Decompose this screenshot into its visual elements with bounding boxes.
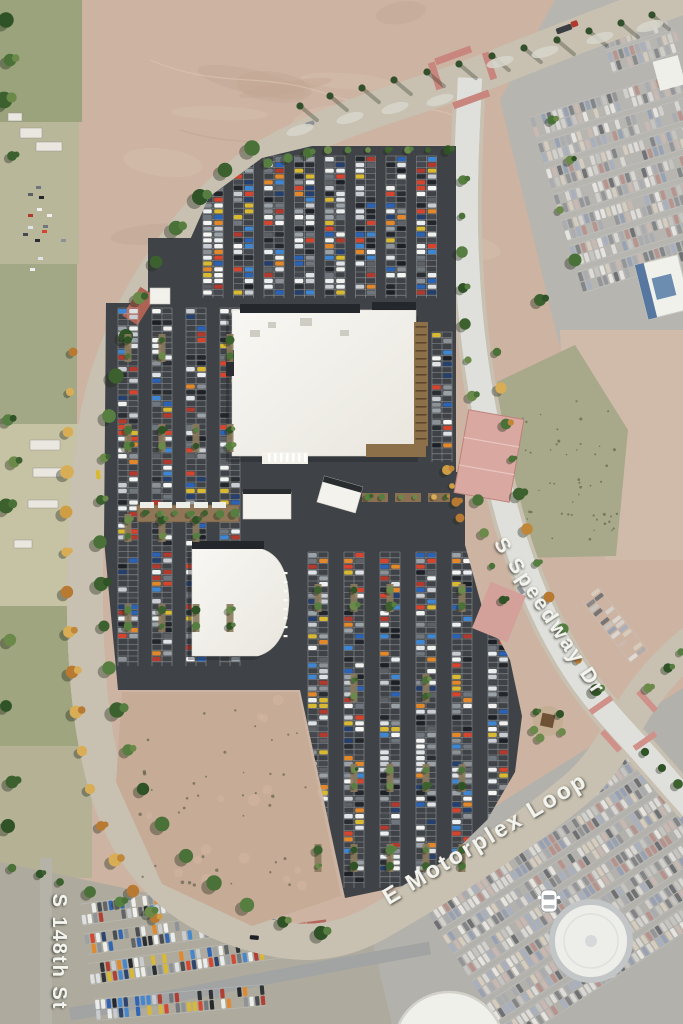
tree — [60, 506, 73, 519]
car — [325, 227, 334, 231]
round-building-hub — [585, 935, 597, 947]
tree — [218, 163, 233, 178]
car — [245, 244, 254, 248]
car — [163, 634, 172, 638]
car — [261, 995, 266, 1005]
tree — [459, 213, 466, 220]
parapet — [372, 302, 416, 310]
car — [264, 273, 273, 277]
car — [380, 715, 389, 719]
roof-unit — [250, 330, 260, 337]
car — [427, 599, 436, 603]
car — [203, 290, 212, 294]
car — [488, 721, 497, 725]
canopy — [176, 502, 190, 508]
car — [214, 198, 223, 202]
car — [432, 362, 441, 366]
car — [336, 169, 345, 173]
scrub — [271, 795, 274, 798]
car — [234, 198, 243, 202]
tree — [14, 152, 20, 158]
dock-door — [416, 326, 427, 328]
scrub — [538, 490, 539, 491]
tree — [355, 602, 360, 607]
car — [355, 663, 364, 667]
car — [214, 989, 219, 999]
car — [204, 1000, 209, 1010]
tree — [117, 854, 125, 862]
car — [295, 215, 304, 219]
car — [197, 384, 206, 388]
tree — [41, 870, 46, 875]
car — [275, 209, 284, 213]
car — [391, 820, 400, 824]
tree — [157, 914, 163, 920]
car — [308, 559, 317, 563]
car — [397, 192, 406, 196]
dock-door — [416, 438, 427, 440]
car — [118, 419, 127, 423]
car — [186, 489, 195, 493]
car — [152, 321, 161, 325]
tree — [244, 140, 260, 156]
car — [245, 180, 254, 184]
scrub — [193, 883, 196, 886]
car — [306, 180, 315, 184]
scrub — [549, 482, 551, 484]
car — [391, 692, 400, 696]
tree — [161, 511, 165, 515]
car — [275, 180, 284, 184]
car — [443, 362, 452, 366]
canopy — [140, 502, 154, 508]
car — [264, 221, 273, 225]
car — [417, 209, 426, 213]
car — [380, 826, 389, 830]
tree — [78, 706, 86, 714]
car — [499, 739, 508, 743]
scrub — [143, 770, 146, 773]
tree — [102, 661, 116, 675]
car — [152, 454, 161, 458]
car — [380, 756, 389, 760]
car — [367, 261, 376, 265]
car — [356, 232, 365, 236]
car — [306, 273, 315, 277]
car — [367, 221, 376, 225]
car — [186, 309, 195, 313]
car — [244, 997, 249, 1007]
tree — [231, 607, 236, 612]
car — [308, 704, 317, 708]
car — [295, 290, 304, 294]
car — [416, 756, 425, 760]
scrub — [589, 538, 592, 541]
car — [234, 244, 243, 248]
scrub — [610, 515, 612, 517]
dock-door — [416, 366, 427, 368]
car — [129, 309, 138, 313]
car — [203, 267, 212, 271]
car — [432, 426, 441, 430]
tree — [351, 587, 358, 594]
car — [214, 238, 223, 242]
car — [163, 483, 172, 487]
car — [367, 203, 376, 207]
car — [417, 290, 426, 294]
car — [226, 998, 231, 1008]
car — [452, 663, 461, 667]
scrub — [269, 773, 271, 775]
car — [380, 576, 389, 580]
car — [344, 617, 353, 621]
car — [118, 489, 127, 493]
car — [380, 669, 389, 673]
car — [186, 367, 195, 371]
tree — [283, 153, 292, 162]
canopy — [194, 502, 208, 508]
tree — [63, 427, 74, 438]
car — [452, 820, 461, 824]
car — [397, 157, 406, 161]
car — [181, 1002, 186, 1012]
car — [356, 157, 365, 161]
tree — [155, 817, 170, 832]
car — [325, 163, 334, 167]
car — [197, 332, 206, 336]
palm-tree — [455, 60, 462, 67]
car — [306, 209, 315, 213]
car — [417, 180, 426, 184]
car — [295, 256, 304, 260]
car — [234, 192, 243, 196]
car — [344, 715, 353, 719]
car — [386, 285, 395, 289]
scrub — [181, 881, 185, 885]
car — [163, 471, 172, 475]
car — [463, 797, 472, 801]
tree — [226, 352, 233, 359]
scrub — [197, 795, 199, 797]
car — [417, 267, 426, 271]
tree — [324, 146, 332, 154]
tree — [553, 116, 559, 122]
car — [427, 570, 436, 574]
entry-mark — [284, 608, 288, 610]
car — [152, 995, 157, 1005]
tree — [129, 442, 134, 447]
car — [135, 996, 140, 1006]
car — [463, 657, 472, 661]
car — [163, 640, 172, 644]
dock-door — [416, 422, 427, 424]
car — [129, 315, 138, 319]
car — [443, 350, 452, 354]
tree — [427, 677, 432, 682]
car — [488, 715, 497, 719]
car — [463, 733, 472, 737]
car — [118, 587, 127, 591]
tree — [158, 352, 165, 359]
tree — [425, 147, 431, 153]
car — [416, 652, 425, 656]
car — [129, 634, 138, 638]
car — [234, 221, 243, 225]
car — [264, 180, 273, 184]
stored-vehicle — [61, 239, 66, 242]
car — [443, 391, 452, 395]
car — [428, 232, 437, 236]
car — [432, 408, 441, 412]
tree — [71, 627, 78, 634]
site-plan-canvas: S Speedway Dr E Motorplex Loop S 148th S… — [0, 0, 683, 1024]
car — [355, 826, 364, 830]
car — [417, 221, 426, 225]
car — [158, 1004, 163, 1014]
tree — [369, 494, 373, 498]
car — [417, 163, 426, 167]
car — [96, 1010, 101, 1020]
car — [499, 768, 508, 772]
parapet — [240, 304, 360, 313]
car — [209, 1000, 214, 1010]
tree — [458, 602, 466, 610]
car — [367, 238, 376, 242]
car — [428, 238, 437, 242]
car — [428, 244, 437, 248]
car — [386, 221, 395, 225]
tree — [489, 563, 495, 569]
shop-canopies — [140, 502, 226, 508]
tree — [158, 606, 166, 614]
car — [428, 163, 437, 167]
tree — [74, 666, 82, 674]
tree — [85, 784, 95, 794]
car — [432, 385, 441, 389]
car — [428, 198, 437, 202]
scrub — [530, 452, 532, 454]
car — [417, 215, 426, 219]
scrub — [193, 782, 196, 785]
car — [306, 261, 315, 265]
car — [416, 744, 425, 748]
car — [386, 227, 395, 231]
car — [203, 227, 212, 231]
car — [432, 391, 441, 395]
car — [356, 250, 365, 254]
scrub — [551, 538, 553, 540]
scrub — [567, 513, 569, 515]
car — [386, 192, 395, 196]
car — [416, 715, 425, 719]
tree — [16, 457, 23, 464]
car — [245, 256, 254, 260]
tree — [474, 391, 480, 397]
scrub — [248, 794, 260, 806]
car — [295, 186, 304, 190]
car — [344, 704, 353, 708]
car — [306, 221, 315, 225]
dock-door — [416, 430, 427, 432]
tree — [124, 606, 132, 614]
scrub — [215, 869, 218, 872]
car — [463, 617, 472, 621]
tree — [351, 783, 357, 789]
tree — [61, 586, 73, 598]
car — [169, 993, 174, 1003]
car — [443, 420, 452, 424]
car — [325, 250, 334, 254]
scrub — [616, 513, 618, 515]
scrub — [613, 448, 616, 451]
car — [308, 721, 317, 725]
car — [488, 733, 497, 737]
tree — [495, 382, 506, 393]
car — [118, 483, 127, 487]
car — [264, 261, 273, 265]
stored-vehicle — [28, 214, 33, 217]
car — [129, 489, 138, 493]
car — [356, 203, 365, 207]
tree — [413, 495, 418, 500]
car — [380, 831, 389, 835]
tree — [355, 678, 358, 681]
tree — [240, 898, 254, 912]
car — [397, 169, 406, 173]
car — [231, 535, 240, 539]
car — [428, 290, 437, 294]
car — [214, 209, 223, 213]
car — [391, 657, 400, 661]
car — [187, 1002, 192, 1012]
car — [306, 192, 315, 196]
car — [308, 623, 317, 627]
car — [295, 180, 304, 184]
car — [386, 273, 395, 277]
tree — [391, 846, 397, 852]
car — [275, 290, 284, 294]
car — [275, 203, 284, 207]
car — [295, 244, 304, 248]
car — [416, 739, 425, 743]
car — [107, 1009, 112, 1019]
building-roof — [192, 548, 289, 656]
car — [391, 681, 400, 685]
car — [186, 495, 195, 499]
car — [306, 215, 315, 219]
car — [152, 564, 161, 568]
entry-mark — [284, 599, 288, 601]
car — [197, 477, 206, 481]
car — [214, 290, 223, 294]
scrub — [556, 443, 558, 445]
tree — [8, 864, 17, 873]
car — [416, 605, 425, 609]
scrub — [260, 714, 268, 722]
dock-door — [416, 374, 427, 376]
scrub — [313, 738, 315, 740]
palm-tree — [326, 92, 333, 99]
car — [355, 715, 364, 719]
scrub — [268, 804, 271, 807]
scrub — [142, 876, 144, 878]
car — [499, 698, 508, 702]
tree — [459, 767, 466, 774]
farm-building — [28, 500, 58, 508]
car — [319, 715, 328, 719]
scrub — [613, 528, 615, 530]
car — [427, 669, 436, 673]
tree — [103, 822, 109, 828]
car — [443, 426, 452, 430]
car — [356, 256, 365, 260]
car — [118, 657, 127, 661]
car — [234, 290, 243, 294]
scrub — [576, 400, 578, 402]
tree — [231, 623, 236, 628]
car — [163, 390, 172, 394]
car — [275, 221, 284, 225]
car — [391, 739, 400, 743]
car — [152, 640, 161, 644]
tree — [641, 748, 649, 756]
car — [397, 227, 406, 231]
loading-dock — [414, 322, 428, 446]
car — [308, 733, 317, 737]
tree — [216, 510, 224, 518]
scrub — [576, 449, 578, 451]
car — [96, 470, 101, 479]
tree — [230, 508, 239, 517]
tree — [558, 728, 566, 736]
car — [427, 797, 436, 801]
car — [245, 285, 254, 289]
tree — [536, 734, 545, 743]
scrub — [572, 501, 574, 503]
car — [416, 553, 425, 557]
car — [118, 570, 127, 574]
car — [499, 675, 508, 679]
car — [428, 203, 437, 207]
car — [416, 733, 425, 737]
car — [197, 355, 206, 359]
tree — [472, 494, 483, 505]
car — [129, 471, 138, 475]
car — [295, 192, 304, 196]
car — [325, 256, 334, 260]
car — [306, 186, 315, 190]
car — [203, 285, 212, 289]
car — [443, 449, 452, 453]
car — [336, 180, 345, 184]
car — [452, 733, 461, 737]
tree — [538, 559, 543, 564]
car — [452, 652, 461, 656]
car — [186, 471, 195, 475]
scrub — [604, 523, 607, 526]
scrub — [579, 418, 582, 421]
car — [295, 174, 304, 178]
car — [118, 413, 127, 417]
scrub — [151, 789, 153, 791]
stored-vehicle — [36, 186, 41, 189]
dock-door — [416, 390, 427, 392]
car — [386, 180, 395, 184]
car — [118, 564, 127, 568]
car — [416, 588, 425, 592]
car — [463, 570, 472, 574]
tree — [449, 466, 455, 472]
